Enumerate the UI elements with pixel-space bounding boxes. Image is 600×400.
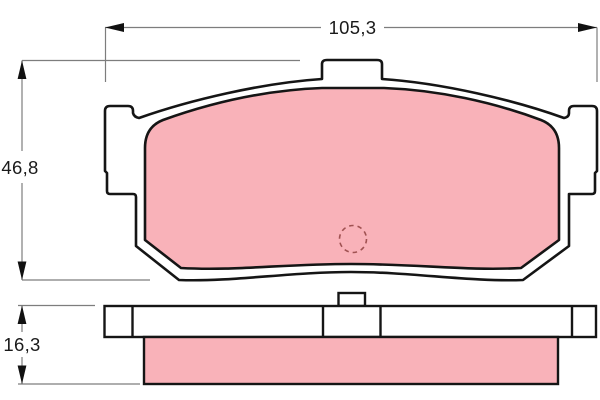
backing-plate-side — [105, 306, 597, 337]
technical-drawing-canvas: 105,3 46,8 16,3 — [0, 0, 600, 400]
friction-material-side — [144, 337, 558, 384]
pad-front-view — [105, 60, 597, 280]
arrowhead-left-icon — [105, 23, 124, 32]
arrowhead-down-icon — [18, 262, 27, 281]
width-dimension-label: 105,3 — [329, 17, 377, 38]
arrowhead-up-icon — [18, 61, 27, 80]
drawing-stage: 105,3 46,8 16,3 — [0, 0, 600, 400]
arrowhead-right-icon — [578, 23, 597, 32]
retainer-tab — [339, 293, 366, 306]
arrowhead-up-icon — [18, 306, 27, 325]
arrowhead-down-icon — [18, 366, 27, 385]
thickness-dimension-label: 16,3 — [3, 334, 40, 355]
friction-material — [145, 88, 559, 269]
height-dimension-label: 46,8 — [1, 157, 38, 178]
pad-side-view — [105, 293, 597, 384]
